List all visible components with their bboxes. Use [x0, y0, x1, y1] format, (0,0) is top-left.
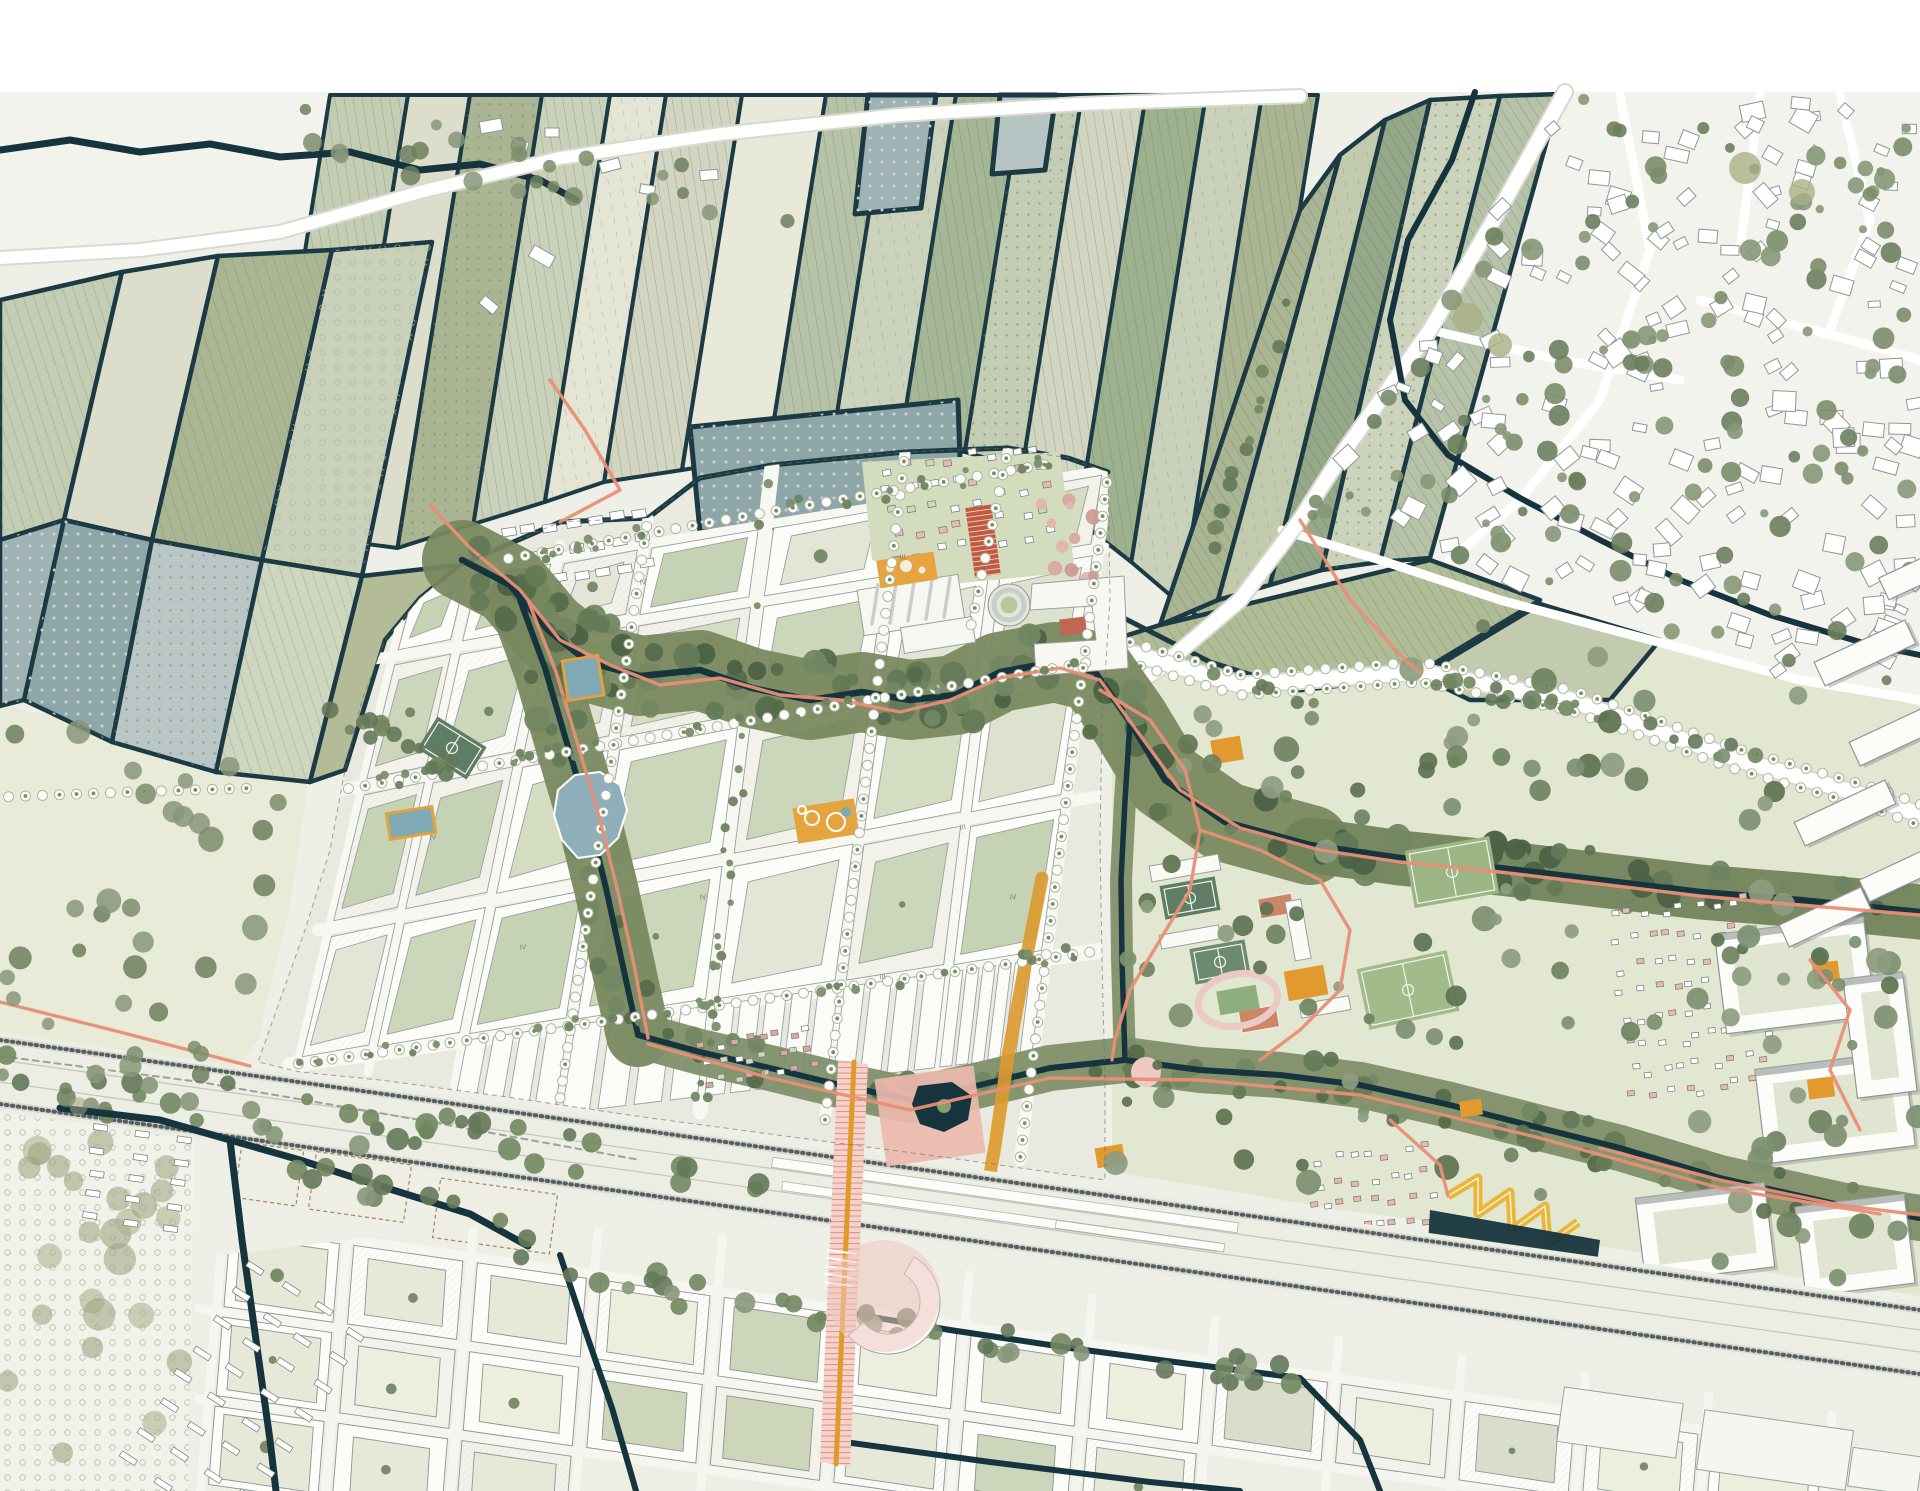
masterplan-map: IVIIIIVIVIIIIVIVIIIIVIVIVIVIVIII	[0, 0, 1920, 1491]
crescent-plaza	[828, 1240, 940, 1352]
map-canvas: IVIIIIVIVIIIIVIVIIIIVIVIVIVIVIII	[0, 0, 1920, 1491]
plaza-2-pool	[841, 807, 851, 817]
svg-text:III: III	[879, 973, 886, 982]
svg-text:III: III	[704, 633, 711, 642]
svg-text:III: III	[899, 553, 906, 562]
pool-1	[562, 655, 604, 700]
stadium-field	[1001, 597, 1018, 614]
svg-text:III: III	[959, 823, 966, 832]
